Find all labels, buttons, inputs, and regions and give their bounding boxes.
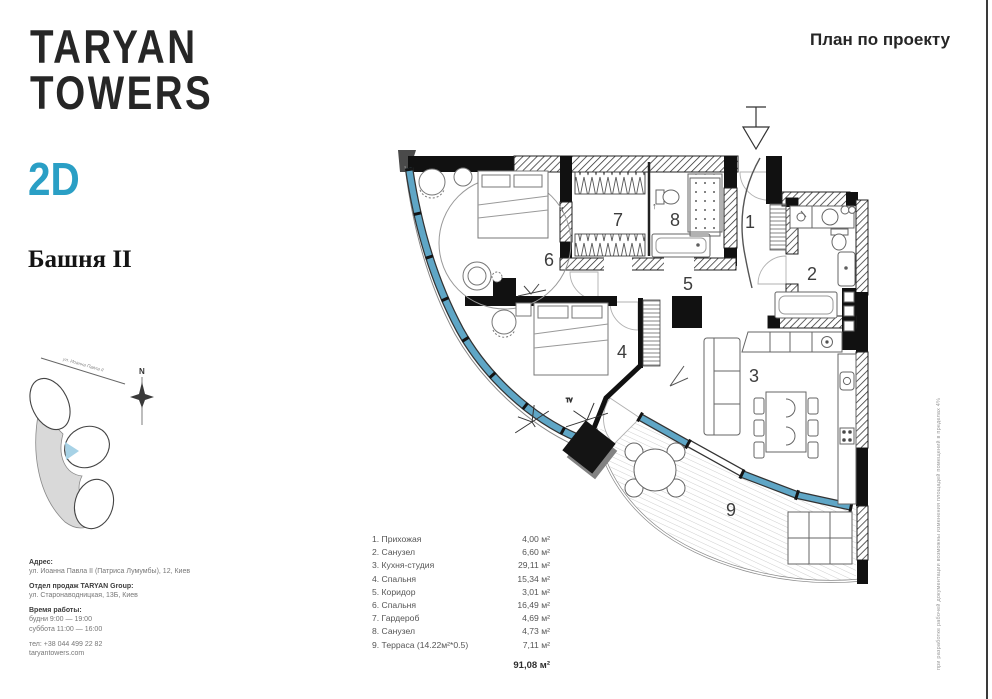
room-label-5: 5 [683,274,693,294]
room-label-8: 8 [670,210,680,230]
svg-text:↑: ↑ [560,204,565,214]
svg-text:TV: TV [566,398,573,404]
wardrobe-room7: ↑ ↑ [560,172,657,256]
room-label-3: 3 [749,366,759,386]
room-label-9: 9 [726,500,736,520]
floor-plan: ↑ ↑ [0,0,992,699]
bedroom4-furniture [492,303,608,375]
room-label-7: 7 [613,210,623,230]
room-label-1: 1 [745,212,755,232]
entry-arrow-icon [743,107,769,149]
plan-sheet: TARYAN TOWERS 2D Башня II План по проект… [0,0,992,699]
room-label-6: 6 [544,250,554,270]
room-label-2: 2 [807,264,817,284]
room-label-4: 4 [617,342,627,362]
